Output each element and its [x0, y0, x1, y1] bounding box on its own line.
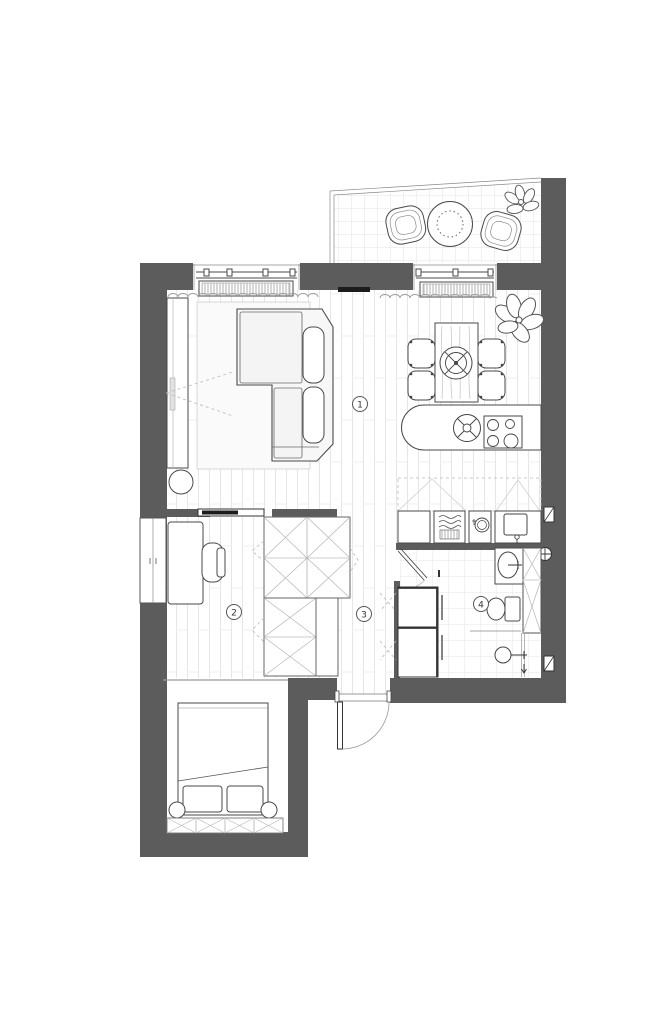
base-cabinet: [398, 511, 430, 543]
room-number: 1: [357, 401, 363, 411]
kitchen-sink-cabinet: [495, 511, 541, 543]
room-label-1: 1: [353, 397, 368, 412]
partition-wall: [272, 509, 337, 517]
kitchen-counter-row: [398, 511, 541, 543]
dining-chair: [408, 371, 435, 400]
washbasin: [495, 548, 523, 584]
media-console: [167, 298, 188, 468]
wall-niche: [544, 507, 554, 522]
wardrobe-side-panel: [316, 598, 338, 676]
room-label-4: 4: [474, 597, 489, 612]
floor-plan-canvas: 1: [0, 0, 668, 1024]
shower-head: [495, 647, 511, 663]
door-leaf: [338, 702, 343, 749]
wall-segment: [288, 678, 337, 700]
entry-door: [335, 691, 391, 749]
wall-segment: [140, 832, 308, 857]
door-swing-arc: [343, 703, 390, 749]
tv-on-console: [170, 378, 175, 410]
room-number: 3: [361, 611, 367, 621]
room-number: 2: [231, 609, 237, 619]
desk: [168, 522, 203, 604]
island-sink: [454, 415, 481, 442]
door-jamb: [335, 691, 339, 702]
floor-plan-page: 1: [0, 0, 668, 1024]
built-in-closet: [140, 518, 166, 603]
wall-segment: [541, 178, 566, 703]
pillow: [183, 786, 222, 812]
hall-floor-bottom: [337, 678, 390, 694]
bedside-lamp: [169, 802, 185, 818]
chaise-cushion: [240, 312, 302, 383]
cooktop: [484, 416, 522, 448]
pillow: [227, 786, 263, 812]
room-label-3: 3: [357, 607, 372, 622]
desk-chair: [202, 543, 225, 582]
tall-cabinet: [523, 548, 541, 633]
wall-segment: [300, 263, 413, 290]
back-cushion: [303, 327, 324, 383]
appliance-stack: [398, 587, 442, 677]
seat-cushion: [274, 388, 302, 458]
wall-tv: [338, 287, 370, 292]
washing-machine: [434, 511, 465, 543]
floor-lamp: [169, 470, 193, 494]
back-cushion: [303, 387, 324, 443]
wall-segment: [390, 678, 566, 703]
bed-alcove: [167, 703, 283, 833]
room-label-2: 2: [227, 605, 242, 620]
dishwasher: [469, 511, 491, 543]
dining-chair: [408, 339, 435, 368]
bedside-lamp: [261, 802, 277, 818]
door-jamb: [387, 691, 391, 702]
storage-bench: [167, 818, 283, 833]
room-number: 4: [478, 601, 484, 611]
wall-niche: [544, 656, 554, 671]
sliding-door: [198, 509, 264, 516]
dining-chair: [478, 371, 505, 400]
kitchen-island: [402, 405, 542, 450]
balcony-table: [428, 202, 473, 247]
bed: [178, 703, 268, 815]
balcony-slab-left-edge: [330, 191, 334, 263]
wall-segment: [288, 678, 308, 857]
pendant-lamp: [440, 347, 472, 379]
dining-chair: [478, 339, 505, 368]
